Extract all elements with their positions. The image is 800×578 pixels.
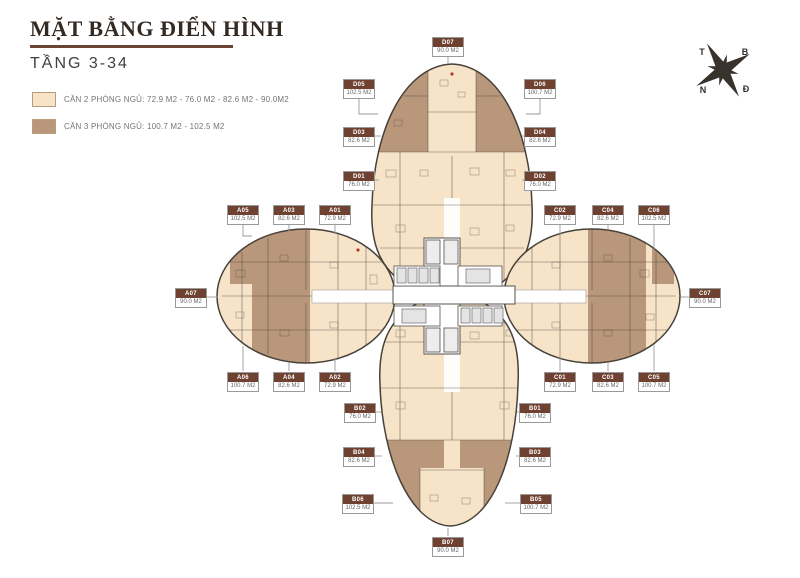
unit-code: D01 (344, 172, 374, 181)
unit-label-d04: D0482.6 M2 (524, 127, 556, 147)
unit-area: 82.6 M2 (274, 382, 304, 391)
unit-code: B02 (345, 404, 375, 413)
unit-code: D02 (525, 172, 555, 181)
unit-label-c02: C0272.9 M2 (544, 205, 576, 225)
unit-label-d03: D0382.6 M2 (343, 127, 375, 147)
unit-label-b05: B05100.7 M2 (520, 494, 552, 514)
unit-code: B06 (343, 495, 373, 504)
unit-code: B04 (344, 448, 374, 457)
unit-area: 82.6 M2 (525, 137, 555, 146)
unit-area: 82.6 M2 (593, 382, 623, 391)
unit-code: D06 (525, 80, 555, 89)
unit-label-c06: C06102.5 M2 (638, 205, 670, 225)
unit-code: A05 (228, 206, 258, 215)
unit-label-c03: C0382.6 M2 (592, 372, 624, 392)
unit-label-a03: A0382.6 M2 (273, 205, 305, 225)
unit-code: A02 (320, 373, 350, 382)
compass-south-label: N (700, 85, 707, 95)
unit-area: 76.0 M2 (520, 413, 550, 422)
compass-north-label: B (742, 47, 749, 57)
unit-label-d06: D06100.7 M2 (524, 79, 556, 99)
page-title: MẶT BẰNG ĐIỂN HÌNH (30, 16, 284, 42)
unit-code: A01 (320, 206, 350, 215)
unit-label-d07: D0790.0 M2 (432, 37, 464, 57)
floor-plan-page: T B N Đ MẶT BẰNG ĐIỂN HÌNH TẦNG 3-34 CĂN… (0, 0, 800, 578)
unit-code: D05 (344, 80, 374, 89)
unit-label-a01: A0172.9 M2 (319, 205, 351, 225)
unit-area: 72.9 M2 (320, 215, 350, 224)
unit-area: 72.9 M2 (545, 215, 575, 224)
unit-code: D07 (433, 38, 463, 47)
unit-code: C02 (545, 206, 575, 215)
unit-label-c04: C0482.6 M2 (592, 205, 624, 225)
unit-area: 82.6 M2 (344, 457, 374, 466)
unit-area: 76.0 M2 (344, 181, 374, 190)
header: MẶT BẰNG ĐIỂN HÌNH TẦNG 3-34 (30, 16, 284, 73)
unit-code: B05 (521, 495, 551, 504)
unit-connector-d06 (526, 97, 540, 114)
unit-code: C01 (545, 373, 575, 382)
unit-area: 72.9 M2 (320, 382, 350, 391)
unit-code: C03 (593, 373, 623, 382)
unit-connector-a05 (243, 223, 252, 236)
unit-area: 100.7 M2 (521, 504, 551, 513)
legend-row-2br: CĂN 2 PHÒNG NGỦ: 72.9 M2 - 76.0 M2 - 82.… (32, 92, 289, 107)
unit-area: 90.0 M2 (433, 547, 463, 556)
unit-area: 76.0 M2 (345, 413, 375, 422)
unit-area: 102.5 M2 (343, 504, 373, 513)
compass-icon: T B N Đ (696, 43, 749, 96)
unit-label-a05: A05102.5 M2 (227, 205, 259, 225)
unit-area: 82.6 M2 (274, 215, 304, 224)
unit-code: A04 (274, 373, 304, 382)
unit-code: B01 (520, 404, 550, 413)
compass-west-label: T (699, 47, 705, 57)
legend: CĂN 2 PHÒNG NGỦ: 72.9 M2 - 76.0 M2 - 82.… (32, 92, 289, 146)
unit-code: C06 (639, 206, 669, 215)
unit-label-c01: C0172.9 M2 (544, 372, 576, 392)
wing-a-left (217, 229, 396, 363)
unit-label-b07: B0790.0 M2 (432, 537, 464, 557)
unit-label-b01: B0176.0 M2 (519, 403, 551, 423)
unit-area: 100.7 M2 (228, 382, 258, 391)
unit-area: 82.6 M2 (520, 457, 550, 466)
unit-area: 90.0 M2 (690, 298, 720, 307)
unit-code: D03 (344, 128, 374, 137)
compass-east-label: Đ (743, 84, 750, 94)
legend-row-3br: CĂN 3 PHÒNG NGỦ: 100.7 M2 - 102.5 M2 (32, 119, 289, 134)
unit-area: 100.7 M2 (525, 89, 555, 98)
unit-label-a02: A0272.9 M2 (319, 372, 351, 392)
unit-label-a07: A0790.0 M2 (175, 288, 207, 308)
unit-label-a04: A0482.6 M2 (273, 372, 305, 392)
unit-label-b03: B0382.6 M2 (519, 447, 551, 467)
unit-label-c07: C0790.0 M2 (689, 288, 721, 308)
unit-code: B07 (433, 538, 463, 547)
unit-area: 72.9 M2 (545, 382, 575, 391)
legend-label-3br: CĂN 3 PHÒNG NGỦ: 100.7 M2 - 102.5 M2 (64, 122, 225, 131)
unit-code: B03 (520, 448, 550, 457)
unit-area: 76.0 M2 (525, 181, 555, 190)
unit-label-d05: D05102.5 M2 (343, 79, 375, 99)
unit-label-b02: B0276.0 M2 (344, 403, 376, 423)
unit-connector-d05 (359, 97, 378, 114)
legend-label-2br: CĂN 2 PHÒNG NGỦ: 72.9 M2 - 76.0 M2 - 82.… (64, 95, 289, 104)
unit-label-d01: D0176.0 M2 (343, 171, 375, 191)
floor-plan-drawing: T B N Đ (0, 0, 800, 578)
unit-code: C04 (593, 206, 623, 215)
floor-range-subtitle: TẦNG 3-34 (30, 55, 284, 73)
unit-code: A07 (176, 289, 206, 298)
unit-area: 102.5 M2 (228, 215, 258, 224)
legend-swatch-2br (32, 92, 56, 107)
unit-code: D04 (525, 128, 555, 137)
unit-area: 82.6 M2 (344, 137, 374, 146)
unit-label-b04: B0482.6 M2 (343, 447, 375, 467)
legend-swatch-3br (32, 119, 56, 134)
unit-code: C07 (690, 289, 720, 298)
unit-label-a06: A06100.7 M2 (227, 372, 259, 392)
unit-code: A06 (228, 373, 258, 382)
title-underline (30, 45, 233, 48)
unit-area: 102.5 M2 (344, 89, 374, 98)
unit-label-b06: B06102.5 M2 (342, 494, 374, 514)
unit-area: 100.7 M2 (639, 382, 669, 391)
unit-area: 82.6 M2 (593, 215, 623, 224)
unit-label-c05: C05100.7 M2 (638, 372, 670, 392)
unit-label-d02: D0276.0 M2 (524, 171, 556, 191)
unit-area: 90.0 M2 (433, 47, 463, 56)
unit-code: C05 (639, 373, 669, 382)
unit-area: 102.5 M2 (639, 215, 669, 224)
unit-code: A03 (274, 206, 304, 215)
wing-c-right (502, 229, 680, 363)
unit-area: 90.0 M2 (176, 298, 206, 307)
